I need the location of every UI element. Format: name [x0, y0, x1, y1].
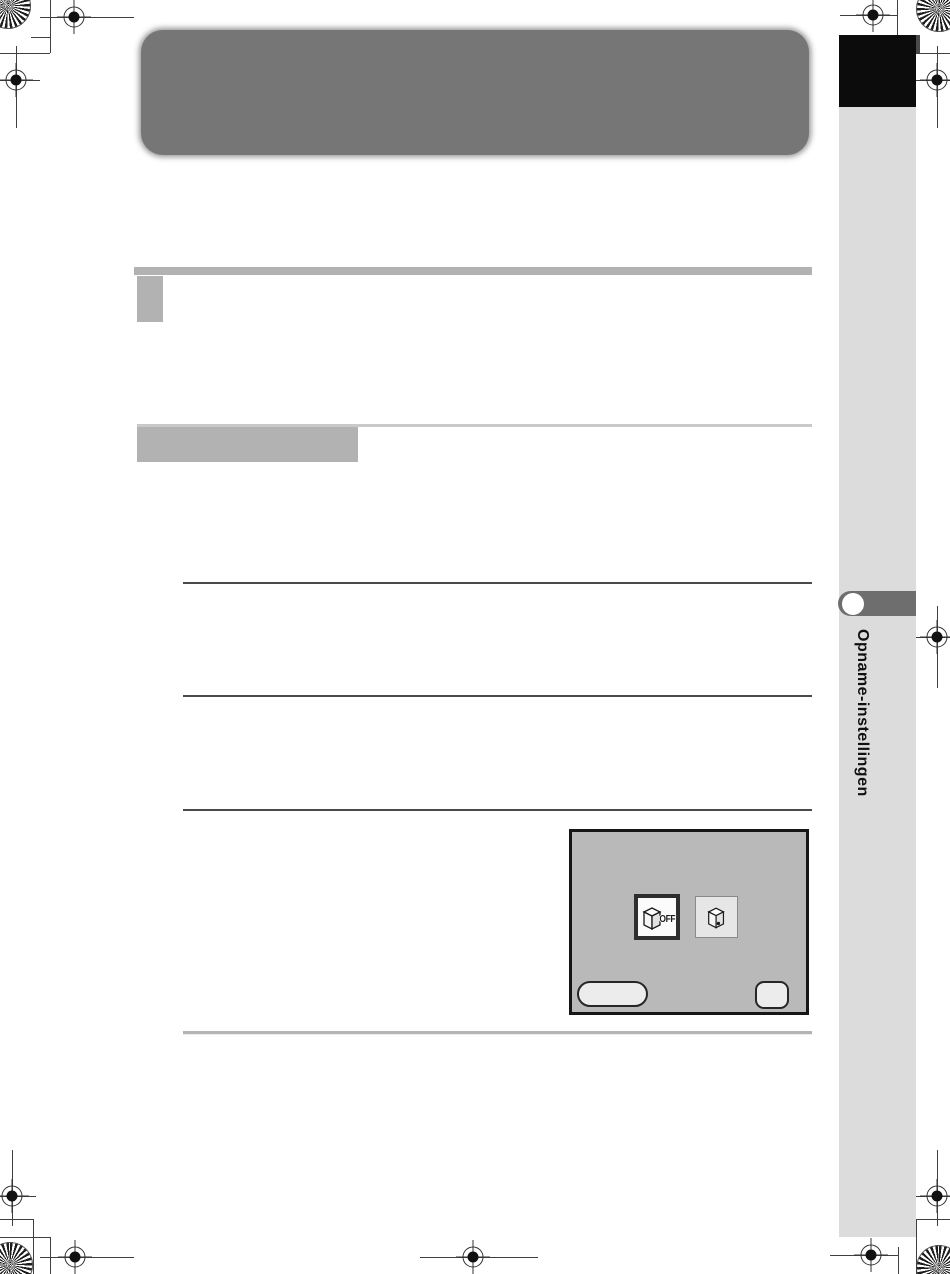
crop-mark [898, 1247, 899, 1274]
chapter-round-tab [838, 591, 916, 616]
camera-screen-illustration: OFF [569, 829, 809, 1015]
sensor-unit-dust-icon [705, 904, 729, 930]
step-divider [183, 582, 812, 584]
registration-mark-icon [456, 1240, 490, 1274]
crop-mark [33, 1219, 34, 1274]
crop-mark [0, 1219, 33, 1220]
crop-mark [0, 1237, 50, 1238]
section-heading-bar [134, 267, 812, 275]
off-label: OFF [659, 914, 675, 925]
crop-mark [31, 37, 50, 38]
trim-notch [916, 35, 920, 53]
option-on-button [695, 896, 738, 938]
crop-mark [50, 0, 51, 53]
color-wheel-icon [0, 1242, 33, 1274]
crop-mark [916, 1219, 917, 1274]
chapter-black-tab [839, 35, 916, 107]
registration-mark-icon [0, 63, 33, 97]
crop-mark [50, 1237, 51, 1274]
pill-button [577, 981, 648, 1007]
document-page: OFF Opname-instellingen [0, 0, 950, 1274]
crop-mark [0, 53, 50, 54]
step-divider [183, 695, 812, 697]
registration-mark-icon [854, 1238, 888, 1272]
color-wheel-icon [916, 0, 950, 32]
step-divider [183, 809, 812, 811]
registration-mark-icon [0, 1179, 29, 1213]
square-button [755, 981, 789, 1009]
crop-mark [916, 1219, 950, 1220]
color-wheel-icon [0, 0, 31, 29]
section-end-rule [183, 1031, 812, 1035]
section-heading-block [137, 276, 163, 322]
registration-mark-icon [57, 0, 91, 34]
registration-mark-icon [58, 1240, 92, 1274]
color-wheel-icon [916, 1245, 950, 1274]
subsection-label-box [137, 427, 358, 462]
option-off-button: OFF [634, 894, 680, 940]
registration-mark-icon [920, 63, 950, 97]
crop-mark [916, 53, 950, 54]
chapter-sidebar-label: Opname-instellingen [841, 629, 871, 797]
registration-mark-icon [920, 620, 950, 654]
chapter-tab-dot [842, 593, 864, 615]
registration-mark-icon [856, 0, 890, 32]
chapter-title-banner [141, 30, 809, 155]
crop-mark [897, 0, 898, 35]
registration-mark-icon [920, 1179, 950, 1213]
